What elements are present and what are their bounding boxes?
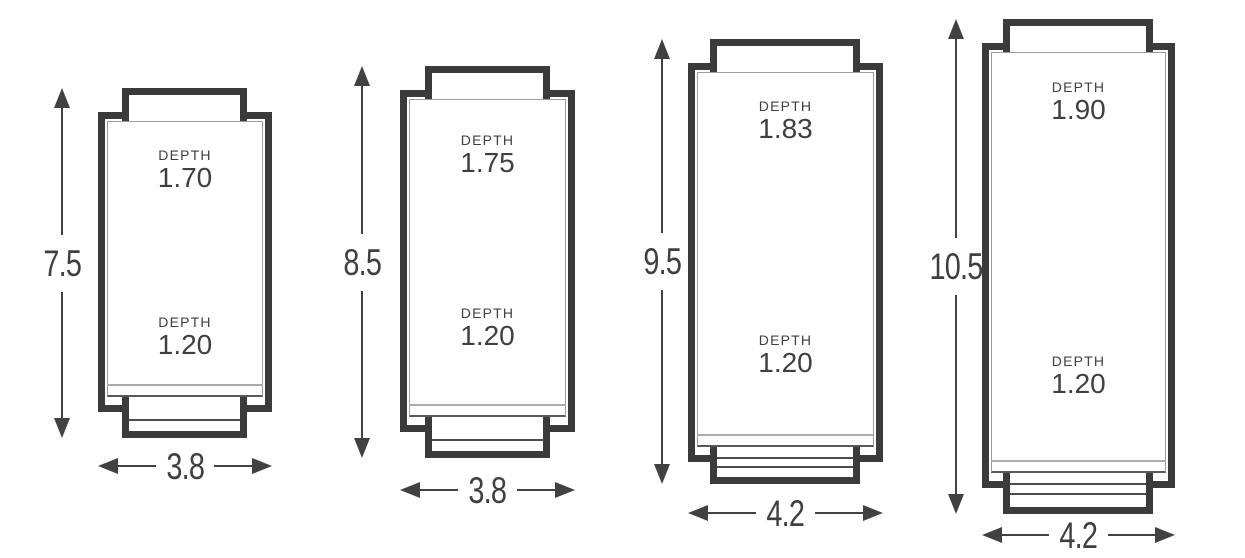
dimension-line-segment xyxy=(955,295,957,494)
depth-label: DEPTH xyxy=(400,305,575,321)
ledge-step-line xyxy=(129,419,240,421)
depth-annotation-deep: DEPTH 1.70 xyxy=(98,147,272,193)
right-arrowhead-icon xyxy=(252,458,272,474)
up-arrowhead-icon xyxy=(54,88,70,108)
pool-size-diagram: 7.5 DEPTH 1.70 DEPTH 1.20 3.8 xyxy=(0,0,1245,558)
ledge-step-line xyxy=(1010,483,1146,485)
dimension-line-segment xyxy=(517,489,555,491)
height-dimension: 10.5 xyxy=(948,19,964,514)
height-dimension: 9.5 xyxy=(654,39,670,484)
height-dimension: 7.5 xyxy=(54,88,70,438)
down-arrowhead-icon xyxy=(654,464,670,484)
height-value: 10.5 xyxy=(929,248,982,285)
depth-value: 1.20 xyxy=(98,330,272,360)
left-arrowhead-icon xyxy=(98,458,118,474)
depth-value: 1.90 xyxy=(982,95,1175,125)
dimension-line-segment xyxy=(118,465,156,467)
dimension-line-segment xyxy=(61,292,63,419)
depth-value: 1.20 xyxy=(688,348,883,378)
pool-top-ledge xyxy=(710,39,860,73)
width-value: 3.8 xyxy=(469,472,507,509)
pool-top-ledge xyxy=(122,88,247,122)
depth-annotation-deep: DEPTH 1.90 xyxy=(982,79,1175,125)
depth-label: DEPTH xyxy=(688,332,883,348)
dimension-line-segment xyxy=(61,108,63,235)
left-arrowhead-icon xyxy=(688,505,708,521)
dimension-line-segment xyxy=(661,290,663,464)
dimension-line-segment xyxy=(361,86,363,234)
up-arrowhead-icon xyxy=(354,66,370,86)
height-dimension: 8.5 xyxy=(354,66,370,458)
height-value: 9.5 xyxy=(643,243,681,280)
width-dimension: 4.2 xyxy=(982,515,1175,555)
width-value: 4.2 xyxy=(767,495,805,532)
pool-bottom-ledge xyxy=(122,397,247,438)
depth-value: 1.70 xyxy=(98,163,272,193)
dimension-line-segment xyxy=(708,512,756,514)
right-arrowhead-icon xyxy=(863,505,883,521)
depth-label: DEPTH xyxy=(982,79,1175,95)
shallow-step-line xyxy=(991,460,1166,462)
ledge-step-line xyxy=(432,439,543,441)
left-arrowhead-icon xyxy=(400,482,420,498)
depth-label: DEPTH xyxy=(400,132,575,148)
height-value: 7.5 xyxy=(43,245,81,282)
shallow-step-line xyxy=(409,404,566,406)
depth-annotation-shallow: DEPTH 1.20 xyxy=(98,314,272,360)
depth-value: 1.75 xyxy=(400,148,575,178)
depth-annotation-shallow: DEPTH 1.20 xyxy=(400,305,575,351)
depth-annotation-deep: DEPTH 1.83 xyxy=(688,98,883,144)
dimension-line-segment xyxy=(955,39,957,238)
dimension-line-segment xyxy=(815,512,863,514)
shallow-step-line xyxy=(697,434,874,436)
depth-label: DEPTH xyxy=(98,147,272,163)
width-dimension: 3.8 xyxy=(400,470,575,510)
pool-top-ledge xyxy=(425,66,550,100)
depth-value: 1.20 xyxy=(400,321,575,351)
shallow-step-line xyxy=(107,384,263,386)
down-arrowhead-icon xyxy=(354,438,370,458)
dimension-line-segment xyxy=(214,465,252,467)
width-value: 3.8 xyxy=(166,448,204,485)
depth-annotation-deep: DEPTH 1.75 xyxy=(400,132,575,178)
up-arrowhead-icon xyxy=(654,39,670,59)
pool-bottom-ledge xyxy=(710,447,860,484)
depth-value: 1.83 xyxy=(688,114,883,144)
pool-bottom-ledge xyxy=(1003,473,1153,514)
down-arrowhead-icon xyxy=(54,418,70,438)
pool-bottom-ledge xyxy=(425,417,550,458)
dimension-line-segment xyxy=(1108,534,1155,536)
down-arrowhead-icon xyxy=(948,494,964,514)
ledge-step-line xyxy=(717,457,853,459)
depth-value: 1.20 xyxy=(982,369,1175,399)
ledge-step-line xyxy=(717,466,853,468)
right-arrowhead-icon xyxy=(555,482,575,498)
depth-label: DEPTH xyxy=(688,98,883,114)
depth-label: DEPTH xyxy=(98,314,272,330)
depth-annotation-shallow: DEPTH 1.20 xyxy=(982,353,1175,399)
dimension-line-segment xyxy=(1002,534,1049,536)
pool-top-ledge xyxy=(1003,19,1153,53)
right-arrowhead-icon xyxy=(1155,527,1175,543)
dimension-line-segment xyxy=(361,291,363,439)
width-value: 4.2 xyxy=(1060,517,1098,554)
depth-label: DEPTH xyxy=(982,353,1175,369)
dimension-line-segment xyxy=(661,59,663,233)
ledge-step-line xyxy=(1010,493,1146,495)
depth-annotation-shallow: DEPTH 1.20 xyxy=(688,332,883,378)
height-value: 8.5 xyxy=(343,244,381,281)
left-arrowhead-icon xyxy=(982,527,1002,543)
width-dimension: 3.8 xyxy=(98,446,272,486)
width-dimension: 4.2 xyxy=(688,493,883,533)
up-arrowhead-icon xyxy=(948,19,964,39)
dimension-line-segment xyxy=(420,489,458,491)
